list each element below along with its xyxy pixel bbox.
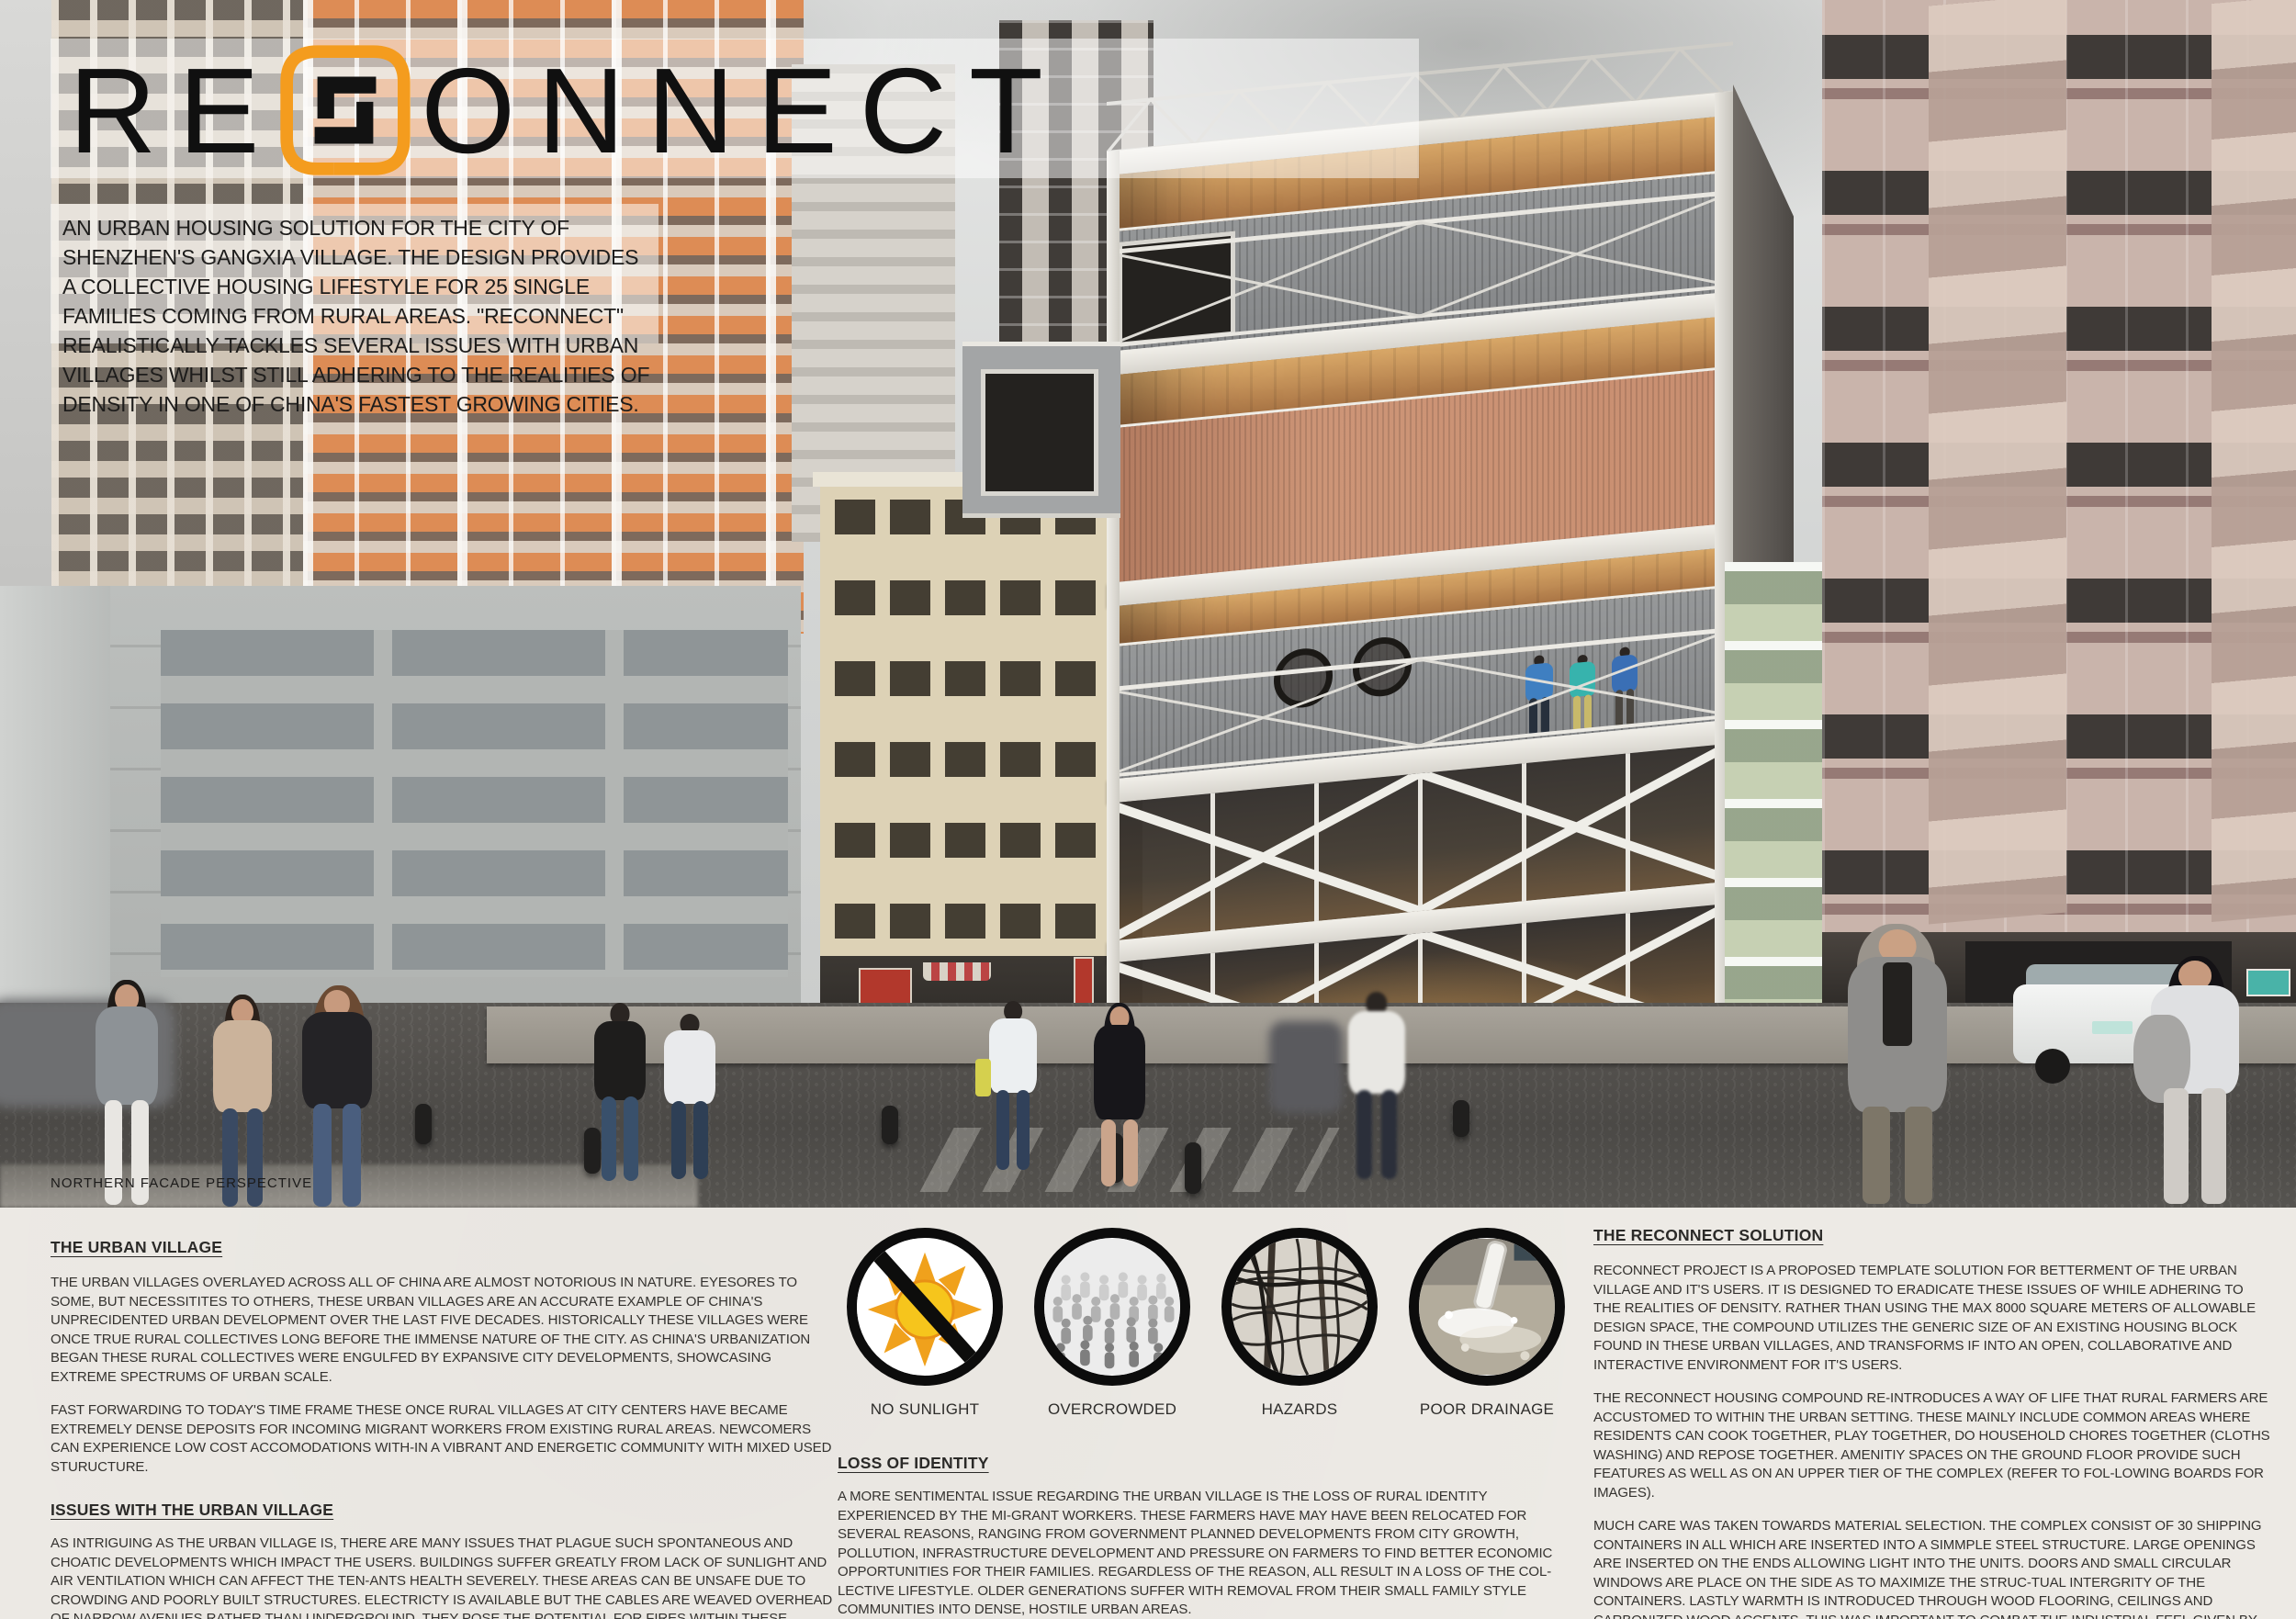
title-suffix: ONNECT (421, 41, 1064, 180)
bollard (1185, 1142, 1201, 1194)
solution-paragraph-1: RECONNECT PROJECT IS A PROPOSED TEMPLATE… (1593, 1262, 2271, 1375)
urban-village-heading: THE URBAN VILLAGE (51, 1238, 838, 1257)
hazards-icon (1221, 1228, 1378, 1386)
bollard (415, 1104, 432, 1144)
presentation-board: RE ONNECT AN URBAN HOUSING SOLUTION FOR … (0, 0, 2296, 1619)
project-title: RE ONNECT (69, 37, 1065, 184)
issue-icons-row: NO SUNLIGHT OVERCROWDED (838, 1228, 1574, 1419)
cantilevered-container (962, 342, 1120, 518)
urban-village-paragraph-1: THE URBAN VILLAGES OVERLAYED ACROSS ALL … (51, 1274, 838, 1387)
pedestrian-man-crossing (983, 1001, 1043, 1172)
urban-village-column: THE URBAN VILLAGE THE URBAN VILLAGES OVE… (51, 1238, 838, 1619)
loss-heading: LOSS OF IDENTITY (838, 1454, 1572, 1473)
pedestrian-man-white (658, 1014, 722, 1181)
concrete-wall (0, 586, 801, 1025)
overcrowded-icon (1034, 1228, 1190, 1386)
solution-paragraph-2: THE RECONNECT HOUSING COMPOUND RE-INTROD… (1593, 1389, 2271, 1502)
intro-paragraph: AN URBAN HOUSING SOLUTION FOR THE CITY O… (62, 213, 655, 419)
issue-icon-label: OVERCROWDED (1025, 1400, 1199, 1419)
reconnect-solution-column: THE RECONNECT SOLUTION RECONNECT PROJECT… (1593, 1226, 2271, 1619)
northern-facade-rendering: RE ONNECT AN URBAN HOUSING SOLUTION FOR … (0, 0, 2296, 1208)
no-sunlight-icon (847, 1228, 1003, 1386)
blurred-motorbike (1269, 1021, 1343, 1113)
issue-icon-cell: HAZARDS (1212, 1228, 1387, 1419)
pedestrian-man-black (588, 1003, 652, 1183)
reconnect-logo-icon (276, 40, 415, 180)
issue-icon-cell: POOR DRAINAGE (1400, 1228, 1574, 1419)
loss-of-identity-section: LOSS OF IDENTITY A MORE SENTIMENTAL ISSU… (838, 1454, 1572, 1619)
issue-icon-label: HAZARDS (1212, 1400, 1387, 1419)
pedestrian-woman-plaid (87, 984, 166, 1207)
bollard (882, 1106, 898, 1144)
issue-icon-label: NO SUNLIGHT (838, 1400, 1012, 1419)
bollard (1453, 1100, 1469, 1137)
issue-icon-cell: OVERCROWDED (1025, 1228, 1199, 1419)
poor-drainage-icon (1409, 1228, 1565, 1386)
window-awnings (2212, 0, 2296, 922)
issue-icon-cell: NO SUNLIGHT (838, 1228, 1012, 1419)
issue-icon-label: POOR DRAINAGE (1400, 1400, 1574, 1419)
window-awnings (1929, 0, 2066, 925)
beige-tenement-building (820, 485, 1121, 1052)
issues-paragraph: AS INTRIGUING AS THE URBAN VILLAGE IS, T… (51, 1535, 838, 1619)
urban-village-paragraph-2: FAST FORWARDING TO TODAY'S TIME FRAME TH… (51, 1401, 838, 1477)
pedestrian-woman-bag (2140, 961, 2250, 1207)
loss-paragraph: A MORE SENTIMENTAL ISSUE REGARDING THE U… (838, 1488, 1572, 1619)
solution-heading: THE RECONNECT SOLUTION (1593, 1226, 2271, 1245)
title-prefix: RE (69, 41, 281, 180)
pedestrian-old-man (1835, 929, 1960, 1207)
pedestrian-woman-dress (1087, 1006, 1152, 1188)
render-caption: NORTHERN FACADE PERSPECTIVE (51, 1175, 312, 1191)
reconnect-container-building (1107, 91, 1733, 1097)
issues-heading: ISSUES WITH THE URBAN VILLAGE (51, 1501, 838, 1520)
green-building (1725, 562, 1833, 1049)
solution-paragraph-3: MUCH CARE WAS TAKEN TOWARDS MATERIAL SEL… (1593, 1517, 2271, 1619)
text-panel: THE URBAN VILLAGE THE URBAN VILLAGES OVE… (0, 1208, 2296, 1619)
pedestrian-man-right (1341, 992, 1412, 1181)
